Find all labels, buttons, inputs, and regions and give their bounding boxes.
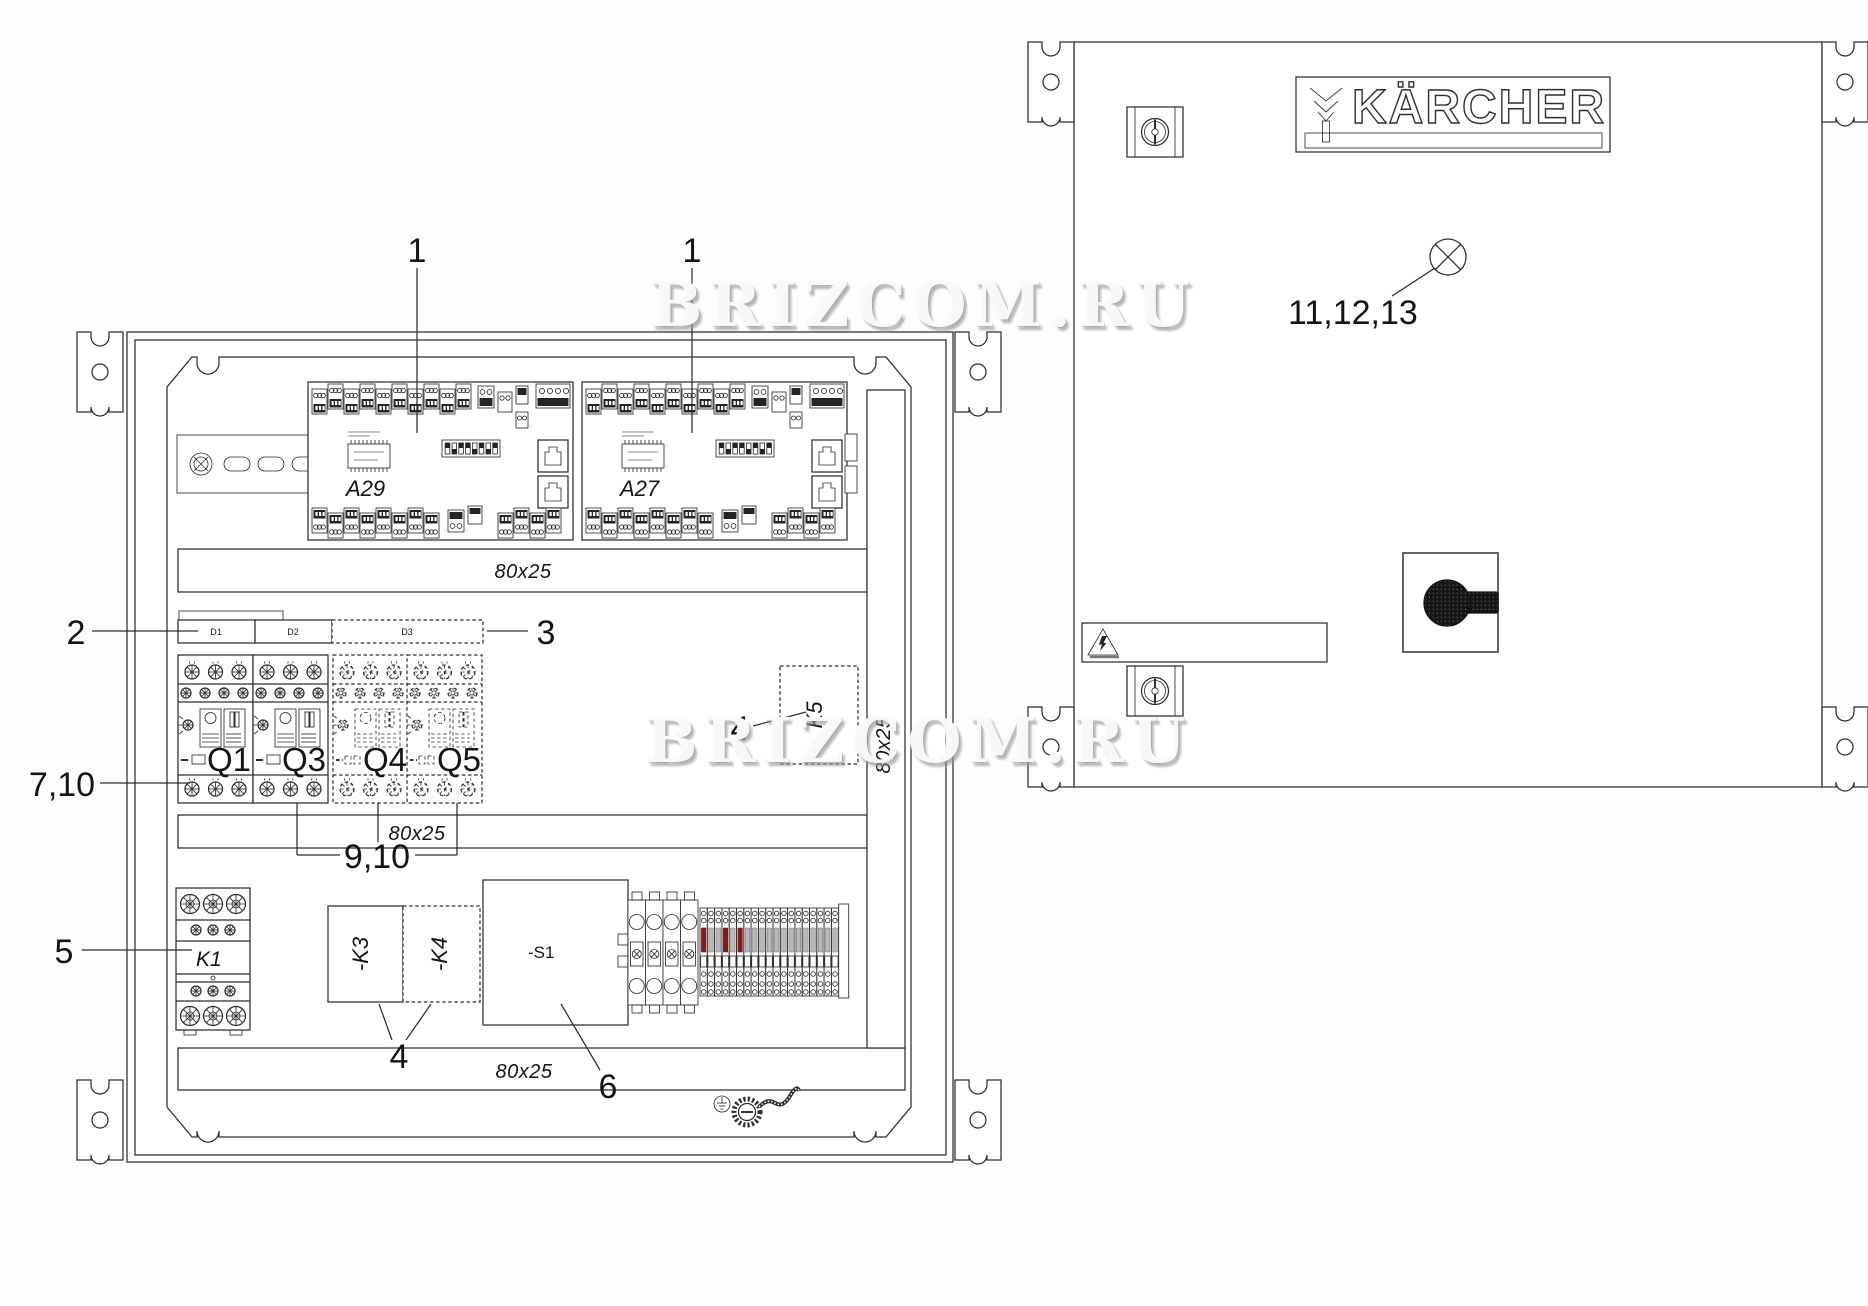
- callout-1-right: 1: [683, 232, 702, 270]
- door-lock-icon: [1127, 107, 1183, 157]
- callout-9-10: 9,10: [344, 838, 410, 876]
- duct-size-label: 80x25: [495, 561, 552, 583]
- relay-label: K5: [802, 701, 827, 729]
- switch-s1: -S1: [483, 880, 628, 1025]
- board-label: A27: [618, 476, 660, 501]
- contactor-label: K1: [196, 948, 222, 971]
- relay-label: -K4: [427, 937, 452, 971]
- terminal-block-large: [618, 892, 698, 1013]
- breaker-q4: Q4: [333, 655, 408, 803]
- breaker-q3: Q3: [253, 655, 328, 803]
- mount-bracket-icon: [1028, 42, 1074, 126]
- switch-knob: [1424, 580, 1470, 626]
- board-label: A29: [344, 476, 385, 501]
- d2-label: D2: [287, 627, 299, 637]
- breaker-q1: Q1: [178, 655, 253, 803]
- callout-11-12-13: 11,12,13: [1288, 294, 1418, 332]
- main-switch: [1403, 553, 1498, 652]
- callout-7-10: 7,10: [29, 766, 95, 804]
- contactor-k1: K1: [176, 888, 250, 1035]
- mount-bracket-icon: [1028, 707, 1074, 791]
- duct-size-label: 80x25: [873, 716, 895, 773]
- brand-label: KÄRCHER: [1352, 81, 1606, 134]
- mount-bracket-icon: [1822, 707, 1868, 791]
- cable-duct-top: 80x25: [178, 549, 867, 592]
- callout-4-k5: 4: [731, 710, 750, 748]
- callout-1-left: 1: [408, 232, 427, 270]
- callout-2: 2: [67, 614, 86, 652]
- s1-label: -S1: [528, 943, 554, 962]
- d1-label: D1: [210, 627, 222, 637]
- switch-handle: [1466, 592, 1498, 613]
- callout-5: 5: [55, 933, 74, 971]
- relay-k5: K5: [780, 666, 858, 764]
- breaker-q5: Q5: [407, 655, 482, 803]
- cabinet-interior-panel: 80x25 80x25 80x25 80x25 A29 A27: [29, 232, 1001, 1164]
- cable-duct-middle: 80x25: [178, 815, 867, 848]
- callout-4-k3k4: 4: [390, 1038, 409, 1076]
- door-lock-icon: [1127, 666, 1183, 716]
- door-face: [1074, 42, 1822, 787]
- cabinet-door-panel: KÄRCHER 11,12,13: [1028, 42, 1868, 791]
- mount-bracket-icon: [77, 332, 123, 416]
- breaker-label: Q5: [437, 741, 481, 778]
- cable-duct-bottom: 80x25: [178, 1048, 905, 1090]
- relay-k4: -K4: [403, 906, 480, 1002]
- mount-bracket-icon: [77, 1080, 123, 1164]
- breaker-label: Q1: [207, 741, 251, 778]
- parts-diagram-page: 80x25 80x25 80x25 80x25 A29 A27: [0, 0, 1868, 1306]
- board-a27: A27: [582, 382, 857, 540]
- board-a29: A29: [308, 382, 573, 540]
- mount-bracket-icon: [1822, 42, 1868, 126]
- mount-bracket-icon: [955, 332, 1001, 416]
- callout-6: 6: [599, 1068, 618, 1106]
- cabinet-diagram-canvas: 80x25 80x25 80x25 80x25 A29 A27: [0, 0, 1868, 1306]
- d3-label: D3: [401, 627, 413, 637]
- duct-size-label: 80x25: [496, 1061, 553, 1083]
- warning-label: [1082, 623, 1327, 662]
- relay-label: -K3: [348, 936, 373, 971]
- breaker-label: Q4: [363, 741, 407, 778]
- brand-plate: KÄRCHER: [1296, 77, 1610, 152]
- callout-3: 3: [537, 614, 556, 652]
- breaker-label: Q3: [282, 741, 326, 778]
- mount-bracket-icon: [955, 1080, 1001, 1164]
- cable-duct-vertical: 80x25: [867, 390, 905, 1048]
- relay-k3: -K3: [328, 906, 403, 1002]
